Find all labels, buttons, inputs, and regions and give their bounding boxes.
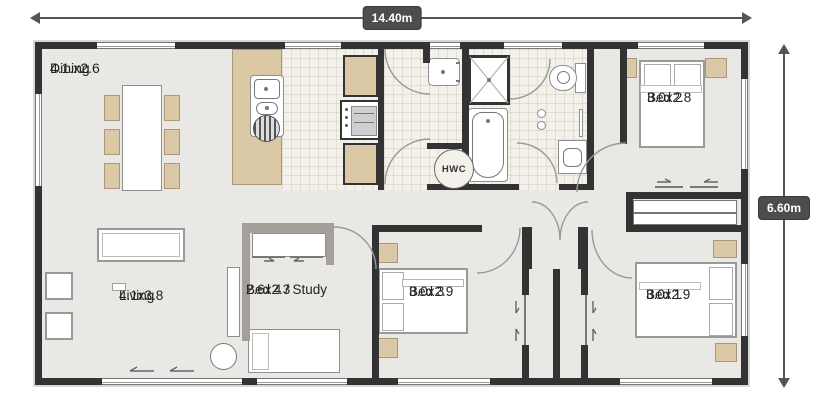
partition-bed4-top bbox=[242, 223, 334, 233]
window bbox=[35, 94, 42, 186]
dining-chair bbox=[104, 129, 120, 155]
side-table bbox=[210, 343, 237, 370]
window bbox=[398, 378, 490, 385]
closet-sliding-door bbox=[585, 295, 587, 345]
room-label-living: Living 4.1x3.8 bbox=[112, 283, 126, 291]
entry-door-jamb bbox=[578, 227, 588, 269]
window bbox=[430, 42, 460, 49]
cooktop-burner-icon bbox=[253, 115, 280, 142]
pillow bbox=[382, 303, 404, 331]
pillow bbox=[252, 333, 269, 370]
entry-door-jamb bbox=[522, 227, 532, 269]
slider-arrow-icon bbox=[657, 179, 671, 182]
tap-icon bbox=[456, 62, 460, 64]
nightstand bbox=[713, 240, 737, 258]
tap-icon bbox=[456, 80, 460, 82]
wall-hwc-nook bbox=[427, 143, 467, 149]
pillow bbox=[644, 64, 671, 86]
wall-kitchen-hall bbox=[378, 49, 384, 190]
room-size: 4.1.x2.6 bbox=[50, 59, 100, 77]
closet-wall-left bbox=[522, 345, 529, 378]
vanity-basin bbox=[563, 148, 582, 167]
window bbox=[741, 79, 748, 169]
window bbox=[504, 42, 562, 49]
door-arc bbox=[592, 230, 632, 278]
nightstand bbox=[378, 338, 398, 358]
room-size: 4.1x3.8 bbox=[119, 287, 163, 305]
double-bed bbox=[378, 268, 468, 334]
vanity bbox=[558, 140, 587, 174]
room-size: 2.6x2.3 bbox=[246, 281, 290, 299]
oven bbox=[340, 100, 380, 140]
window bbox=[620, 378, 712, 385]
study-desk bbox=[252, 233, 326, 257]
nightstand bbox=[378, 243, 398, 263]
room-label-bed2: Bed 2 3.0x2.8 bbox=[640, 85, 702, 93]
slider-arrow-icon bbox=[294, 258, 304, 261]
bath-drain-dot bbox=[486, 119, 490, 123]
slider-arrow-icon bbox=[516, 329, 519, 341]
slider-arrow-icon bbox=[593, 329, 596, 341]
wall-bed1-top bbox=[630, 225, 741, 232]
window bbox=[285, 42, 341, 49]
wall-bed2-left bbox=[620, 49, 627, 144]
single-bed bbox=[248, 329, 340, 373]
wall-bed3-top bbox=[372, 225, 482, 232]
sink-drain-dot bbox=[265, 106, 269, 110]
bed4-sliding-door bbox=[290, 256, 323, 258]
wardrobe-sliding-door bbox=[634, 212, 736, 214]
wall-bed3-left bbox=[372, 225, 379, 378]
oven-line bbox=[354, 122, 374, 123]
room-size: 3.0x2.9 bbox=[646, 286, 690, 304]
dining-chair bbox=[104, 95, 120, 121]
closet-wall-right bbox=[581, 345, 588, 378]
room-size: 3.0x2.9 bbox=[409, 283, 453, 301]
floor-plan-canvas: 14.40m 6.60m bbox=[0, 0, 815, 419]
toilet-bowl-inner bbox=[557, 71, 570, 84]
pillow bbox=[709, 267, 733, 300]
armchair bbox=[45, 272, 73, 300]
width-dimension-badge: 14.40m bbox=[363, 6, 422, 30]
pillow bbox=[709, 303, 733, 336]
window bbox=[638, 42, 704, 49]
sideboard bbox=[227, 267, 240, 337]
slider-arrow-icon bbox=[170, 367, 194, 371]
closet-wall-left bbox=[522, 269, 529, 295]
arrowhead-left-icon bbox=[30, 12, 40, 24]
door-arc bbox=[477, 228, 520, 273]
height-dimension-badge: 6.60m bbox=[758, 196, 810, 220]
window bbox=[97, 42, 175, 49]
arrowhead-down-icon bbox=[778, 378, 790, 388]
arrowhead-right-icon bbox=[742, 12, 752, 24]
oven-knob bbox=[345, 124, 348, 127]
oven-line bbox=[354, 113, 374, 114]
closet-sliding-door bbox=[524, 295, 526, 345]
room-label-bed3: Bed 3 3.0x2.9 bbox=[402, 279, 464, 287]
bed4-sliding-door bbox=[252, 256, 285, 258]
window bbox=[741, 264, 748, 336]
oven-door bbox=[351, 106, 377, 136]
dining-chair bbox=[104, 163, 120, 189]
pillow bbox=[382, 272, 404, 300]
dining-chair bbox=[164, 163, 180, 189]
pillow bbox=[674, 64, 701, 86]
oven-knob bbox=[345, 116, 348, 119]
dining-chair bbox=[164, 129, 180, 155]
window bbox=[257, 378, 347, 385]
entry-double-door-arc bbox=[532, 202, 560, 240]
arrowhead-up-icon bbox=[778, 44, 790, 54]
towel-rail bbox=[579, 109, 583, 137]
slider-arrow-icon bbox=[593, 301, 596, 313]
kitchen-tall-cabinet bbox=[343, 55, 378, 97]
laundry-tub bbox=[428, 58, 460, 86]
slider-arrow-icon bbox=[130, 367, 154, 371]
bed2-wardrobe-sliding-door bbox=[655, 186, 683, 188]
slider-arrow-icon bbox=[516, 301, 519, 313]
wardrobe bbox=[633, 200, 737, 225]
hot-water-cylinder: HWC bbox=[434, 149, 474, 189]
building-outline: HWC bbox=[35, 42, 748, 385]
wall-laundry-stub bbox=[423, 49, 430, 63]
sofa bbox=[97, 228, 185, 262]
tub-drain-dot bbox=[441, 70, 445, 74]
towel-hook-icon bbox=[537, 109, 546, 118]
slider-arrow-icon bbox=[264, 258, 274, 261]
sink-drain-dot bbox=[264, 87, 268, 91]
closet-wall-right bbox=[581, 269, 588, 295]
wall-bath-bottom-left bbox=[427, 184, 519, 190]
dining-table bbox=[122, 85, 162, 191]
wall-bathroom-right bbox=[587, 49, 594, 190]
bed2-wardrobe-sliding-door bbox=[690, 186, 718, 188]
towel-hook-icon bbox=[537, 121, 546, 130]
partition-bed4-right bbox=[326, 223, 334, 265]
wall-bed2-bottom bbox=[626, 192, 741, 199]
kitchen-tall-cabinet bbox=[343, 143, 378, 185]
slider-arrow-icon bbox=[704, 179, 718, 182]
nightstand bbox=[715, 343, 737, 362]
dining-chair bbox=[164, 95, 180, 121]
oven-knob bbox=[345, 108, 348, 111]
sliding-door-window bbox=[102, 378, 242, 385]
closet-wall-middle bbox=[553, 269, 560, 378]
armchair bbox=[45, 312, 73, 340]
shower bbox=[468, 55, 510, 105]
door-arc bbox=[334, 227, 376, 269]
room-label-bed1: Bed 1 3.0x2.9 bbox=[639, 282, 701, 290]
room-size: 3.0x2.8 bbox=[647, 89, 691, 107]
nightstand bbox=[705, 58, 727, 78]
